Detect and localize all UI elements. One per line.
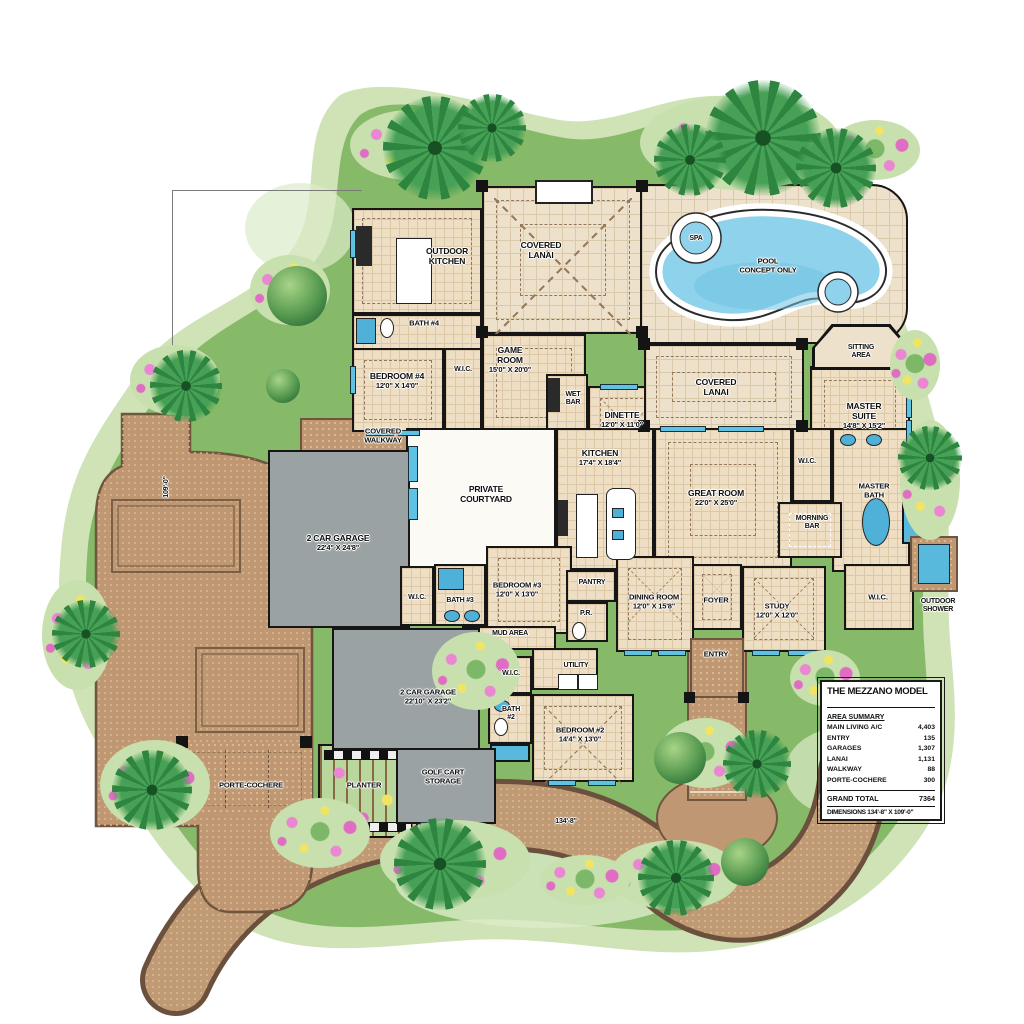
- lanai-column: [796, 420, 808, 432]
- window: [624, 650, 652, 656]
- label-mud-area: MUD AREA: [492, 630, 528, 638]
- label-covered-lanai-top: COVERED LANAI: [521, 241, 562, 261]
- palm-tree: [394, 818, 486, 910]
- label-kitchen: KITCHEN17'4" X 18'4": [579, 449, 621, 467]
- outdoor-shower-platform: [910, 536, 958, 592]
- label-sitting-area: SITTING AREA: [848, 344, 874, 360]
- area-row: GARAGES1,307: [827, 744, 935, 755]
- lanai-column: [638, 338, 650, 350]
- kitchen-range: [558, 500, 568, 536]
- palm-tree: [638, 840, 714, 916]
- entry-column: [738, 692, 749, 703]
- grand-total-row: GRAND TOTAL7364: [827, 790, 935, 803]
- dimension-line-horizontal: [172, 190, 362, 191]
- label-golf-cart: GOLF CART STORAGE: [422, 768, 465, 785]
- master-vanity-sink: [840, 434, 856, 446]
- master-vanity-sink: [866, 434, 882, 446]
- label-master-suite: MASTER SUITE14'8" X 15'2": [843, 402, 885, 430]
- floor-plan-canvas: COVERED WALKWAY OUTDOOR KITCHEN COVERED …: [0, 0, 1024, 1024]
- label-wic-bedroom3: W.I.C.: [408, 594, 426, 602]
- label-dinette: DINETTE12'0" X 11'0": [601, 411, 643, 429]
- label-garage-1: 2 CAR GARAGE22'4" X 24'8": [307, 534, 370, 552]
- window: [752, 650, 780, 656]
- label-outdoor-shower: OUTDOOR SHOWER: [921, 598, 955, 614]
- bath3-sink: [464, 610, 480, 622]
- outdoor-kitchen-appliances: [356, 226, 372, 266]
- bath4-shower: [356, 318, 376, 344]
- flower-bed: [540, 855, 630, 905]
- palm-tree: [112, 750, 192, 830]
- sliding-door: [718, 426, 764, 432]
- bath4-toilet: [380, 318, 394, 338]
- bath3-shower: [438, 568, 464, 590]
- label-wic-hall: W.I.C.: [798, 458, 816, 466]
- lanai-column: [476, 180, 488, 192]
- palm-tree: [898, 426, 962, 490]
- palm-tree: [796, 128, 876, 208]
- label-garage-2: 2 CAR GARAGE22'10" X 23'2": [400, 688, 456, 705]
- label-foyer: FOYER: [703, 597, 728, 606]
- palm-tree: [723, 730, 791, 798]
- plan-title: THE MEZZANO MODEL: [827, 686, 935, 708]
- palm-tree: [458, 94, 526, 162]
- sliding-door: [660, 426, 706, 432]
- kitchen-island: [576, 494, 598, 558]
- kitchen-sink: [612, 530, 624, 540]
- shrub: [721, 838, 769, 886]
- label-spa: SPA: [689, 235, 702, 243]
- courtyard-planter: [408, 446, 418, 482]
- label-master-bath: MASTER BATH: [859, 482, 890, 499]
- bath3-sink: [444, 610, 460, 622]
- label-bath-4: BATH #4: [409, 320, 439, 329]
- window: [350, 366, 356, 394]
- label-private-courtyard: PRIVATE COURTYARD: [460, 485, 512, 505]
- area-row: PORTE-COCHERE300: [827, 776, 935, 787]
- label-wic-bedroom4: W.I.C.: [454, 366, 472, 374]
- shrub: [267, 266, 327, 326]
- label-bath-3: BATH #3: [446, 597, 473, 605]
- flower-bed: [270, 798, 370, 868]
- title-block: THE MEZZANO MODEL AREA SUMMARY MAIN LIVI…: [820, 680, 942, 821]
- lanai-column: [636, 180, 648, 192]
- laundry-machine: [558, 674, 578, 690]
- window: [658, 650, 686, 656]
- lanai-stair: [535, 180, 593, 204]
- lanai-column: [476, 326, 488, 338]
- label-covered-walkway: COVERED WALKWAY: [364, 427, 402, 444]
- label-bedroom-3: BEDROOM #312'0" X 13'0": [493, 581, 541, 598]
- label-dimension-width: 134'-8": [555, 818, 577, 826]
- room-covered-lanai-top: [482, 186, 644, 334]
- label-dimension-height: 109'-0": [163, 476, 171, 498]
- palm-tree: [52, 600, 120, 668]
- label-great-room: GREAT ROOM22'0" X 25'0": [688, 489, 744, 507]
- courtyard-planter: [408, 488, 418, 520]
- window: [600, 384, 638, 390]
- lanai-column: [636, 326, 648, 338]
- label-pool: POOL CONCEPT ONLY: [739, 257, 796, 274]
- label-powder-room: P.R.: [580, 610, 592, 618]
- laundry-machine: [578, 674, 598, 690]
- room-wic-bedroom4: [444, 348, 482, 432]
- flower-bed: [890, 330, 940, 400]
- dimensions-row: DIMENSIONS 134'-8" X 109'-0": [827, 806, 935, 816]
- label-bath-2: BATH #2: [502, 706, 520, 722]
- label-covered-lanai-right: COVERED LANAI: [696, 378, 737, 398]
- window: [548, 780, 576, 786]
- kitchen-island: [606, 488, 636, 560]
- label-dining-room: DINING ROOM12'0" X 15'8": [629, 593, 679, 610]
- area-summary-heading: AREA SUMMARY: [827, 714, 935, 721]
- porte-column: [300, 736, 312, 748]
- wet-bar-cabinet: [548, 378, 560, 412]
- kitchen-sink: [612, 508, 624, 518]
- area-row: WALKWAY88: [827, 765, 935, 776]
- palm-tree: [150, 350, 222, 422]
- label-utility: UTILITY: [563, 662, 588, 670]
- area-row: MAIN LIVING A/C4,403: [827, 723, 935, 734]
- label-bedroom-4: BEDROOM #412'0" X 14'0": [370, 372, 424, 390]
- label-outdoor-kitchen: OUTDOOR KITCHEN: [426, 247, 468, 267]
- window: [588, 780, 616, 786]
- shrub: [266, 369, 300, 403]
- powder-toilet: [572, 622, 586, 640]
- lanai-column: [796, 338, 808, 350]
- area-row: ENTRY135: [827, 734, 935, 745]
- label-morning-bar: MORNING BAR: [796, 515, 828, 531]
- bath2-shower: [490, 744, 530, 762]
- area-row: LANAI1,131: [827, 755, 935, 766]
- entry-column: [684, 692, 695, 703]
- label-pantry: PANTRY: [579, 579, 606, 587]
- label-wet-bar: WET BAR: [566, 391, 581, 407]
- room-golf-cart-storage: [396, 748, 496, 824]
- entry-porch: [690, 638, 744, 698]
- label-wic-master: W.I.C.: [868, 594, 887, 603]
- shrub: [654, 732, 706, 784]
- label-bedroom-2: BEDROOM #214'4" X 13'0": [556, 726, 604, 743]
- label-study: STUDY12'0" X 12'0": [756, 602, 798, 619]
- label-game-room: GAME ROOM15'0" X 20'0": [489, 346, 531, 374]
- label-entry: ENTRY: [704, 651, 728, 660]
- label-planter: PLANTER: [347, 782, 381, 791]
- palm-tree: [654, 124, 726, 196]
- master-tub: [862, 498, 890, 546]
- label-porte-cochere: PORTE-COCHERE: [219, 782, 283, 791]
- label-wic-bedroom2: W.I.C.: [502, 670, 520, 678]
